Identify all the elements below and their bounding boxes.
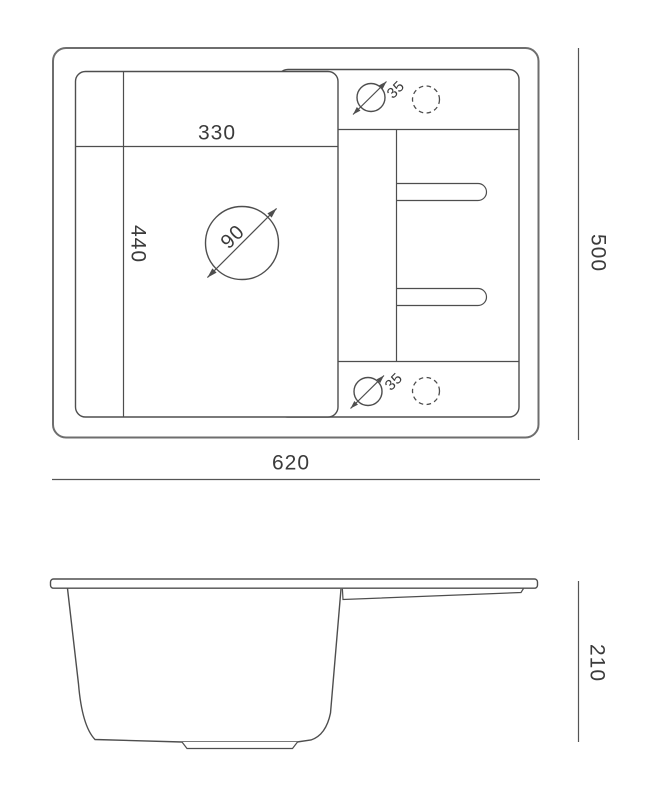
dim-label-overall-depth: 500 <box>588 234 609 272</box>
dim-label-bowl-width: 330 <box>198 123 236 144</box>
side-drainboard-edge <box>342 589 523 600</box>
side-rim <box>51 579 538 588</box>
technical-drawing <box>0 0 654 800</box>
side-view <box>51 579 538 749</box>
drawing-canvas: 330 440 90 35 35 620 500 210 <box>0 0 654 800</box>
dim-label-overall-width: 620 <box>272 453 310 474</box>
side-bowl-profile <box>68 589 342 743</box>
side-drain-foot <box>182 742 298 749</box>
dim-label-bowl-length: 440 <box>128 225 149 263</box>
dim-label-overall-height: 210 <box>587 644 608 682</box>
